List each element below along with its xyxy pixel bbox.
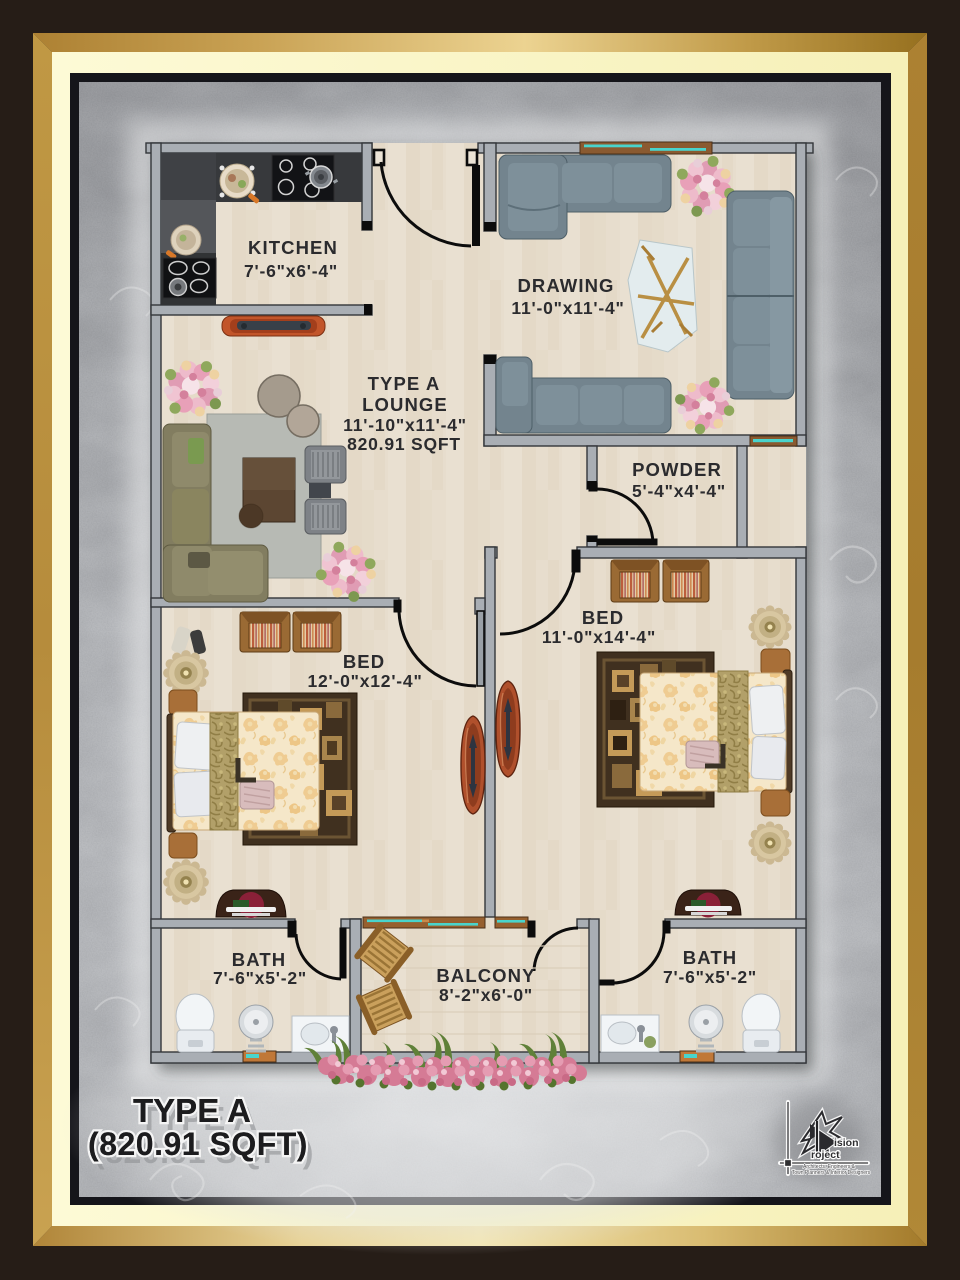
svg-text:BATH: BATH xyxy=(232,949,286,970)
svg-text:11'-0"x11'-4": 11'-0"x11'-4" xyxy=(511,298,624,318)
svg-text:11'-0"x14'-4": 11'-0"x14'-4" xyxy=(542,627,656,647)
svg-text:ision: ision xyxy=(834,1137,859,1149)
svg-text:BATH: BATH xyxy=(683,947,737,968)
svg-text:BALCONY: BALCONY xyxy=(436,965,535,986)
svg-text:7'-6"x6'-4": 7'-6"x6'-4" xyxy=(244,261,338,281)
svg-text:7'-6"x5'-2": 7'-6"x5'-2" xyxy=(213,968,307,988)
svg-text:(820.91 SQFT): (820.91 SQFT) xyxy=(88,1126,308,1162)
svg-text:TYPE A: TYPE A xyxy=(133,1092,251,1129)
svg-text:820.91 SQFT: 820.91 SQFT xyxy=(347,434,461,454)
svg-text:5'-4"x4'-4": 5'-4"x4'-4" xyxy=(632,481,726,501)
svg-text:TYPE A: TYPE A xyxy=(368,373,441,394)
svg-text:POWDER: POWDER xyxy=(632,459,722,480)
svg-text:KITCHEN: KITCHEN xyxy=(248,237,338,258)
svg-text:roject: roject xyxy=(811,1149,840,1161)
svg-text:BED: BED xyxy=(582,607,624,628)
svg-text:8'-2"x6'-0": 8'-2"x6'-0" xyxy=(439,985,533,1005)
svg-text:12'-0"x12'-4": 12'-0"x12'-4" xyxy=(307,671,422,691)
svg-text:LOUNGE: LOUNGE xyxy=(362,394,448,415)
svg-text:7'-6"x5'-2": 7'-6"x5'-2" xyxy=(663,967,757,987)
svg-text:DRAWING: DRAWING xyxy=(517,275,614,296)
svg-text:BED: BED xyxy=(343,651,385,672)
svg-text:11'-10"x11'-4": 11'-10"x11'-4" xyxy=(343,415,467,435)
svg-text:Town Planners & Interior Desig: Town Planners & Interior Designers xyxy=(792,1170,871,1176)
